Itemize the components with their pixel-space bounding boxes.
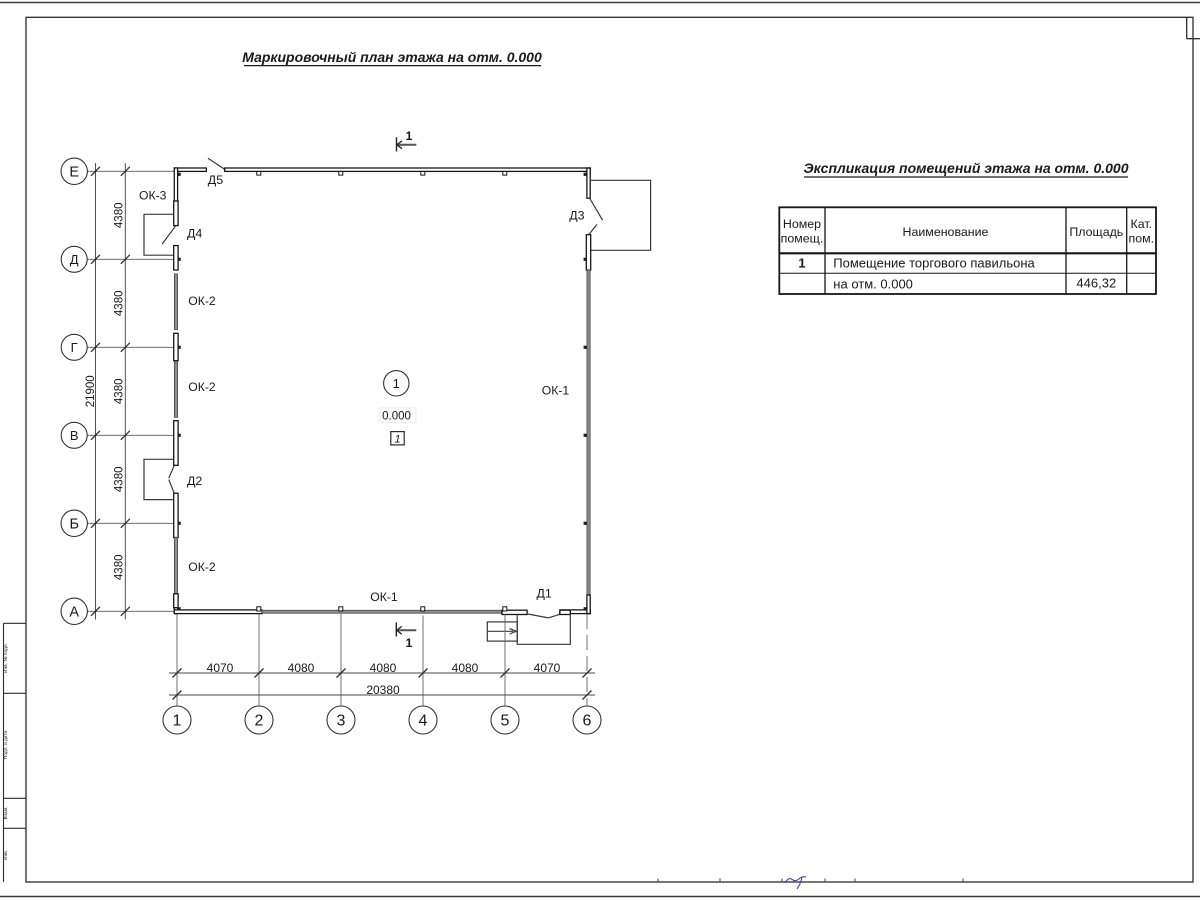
svg-text:Наименование: Наименование (903, 225, 989, 239)
svg-text:Кат.: Кат. (1131, 217, 1153, 231)
svg-text:ОК-1: ОК-1 (542, 383, 570, 397)
svg-text:4080: 4080 (370, 661, 397, 675)
svg-text:ОК-1: ОК-1 (370, 590, 398, 604)
svg-text:3: 3 (337, 713, 346, 730)
svg-text:4380: 4380 (114, 291, 126, 317)
svg-text:Инв.: Инв. (3, 850, 9, 860)
svg-text:Г: Г (71, 340, 78, 355)
svg-text:Площадь: Площадь (1069, 225, 1123, 239)
svg-text:Инв. № подл.: Инв. № подл. (3, 643, 9, 673)
svg-text:А: А (69, 605, 79, 621)
svg-text:446,32: 446,32 (1076, 276, 1116, 291)
svg-text:Д: Д (70, 252, 79, 267)
svg-text:Взам.: Взам. (3, 807, 9, 820)
svg-text:Д5: Д5 (208, 173, 223, 187)
svg-text:Б: Б (69, 517, 79, 533)
svg-text:Д2: Д2 (187, 474, 202, 488)
svg-text:21900: 21900 (85, 375, 97, 407)
svg-text:на отм. 0.000: на отм. 0.000 (833, 277, 913, 292)
svg-text:2: 2 (255, 713, 264, 730)
svg-text:4080: 4080 (288, 661, 315, 675)
svg-text:1: 1 (406, 129, 413, 143)
svg-text:4: 4 (419, 713, 428, 730)
svg-text:1: 1 (173, 713, 182, 730)
svg-text:Е: Е (69, 165, 79, 181)
svg-text:4070: 4070 (207, 661, 234, 675)
svg-text:ОК-3: ОК-3 (139, 189, 167, 203)
svg-text:помещ.: помещ. (781, 232, 824, 246)
svg-text:Номер: Номер (783, 217, 821, 231)
svg-text:В: В (70, 428, 79, 443)
svg-text:пом.: пом. (1129, 232, 1155, 246)
svg-text:Д1: Д1 (537, 587, 552, 601)
svg-text:4080: 4080 (452, 661, 479, 675)
svg-text:1: 1 (798, 256, 805, 271)
svg-text:ОК-2: ОК-2 (188, 560, 216, 574)
svg-text:5: 5 (501, 713, 510, 730)
svg-text:Маркировочный план этажа на от: Маркировочный план этажа на отм. 0.000 (242, 49, 542, 65)
svg-text:1: 1 (393, 376, 400, 391)
svg-text:4380: 4380 (114, 203, 126, 229)
svg-text:4380: 4380 (114, 379, 126, 405)
svg-text:Д3: Д3 (569, 209, 584, 223)
svg-text:Д4: Д4 (187, 226, 202, 240)
svg-text:1: 1 (406, 636, 413, 650)
svg-text:1: 1 (394, 433, 400, 445)
svg-text:Экспликация помещений этажа на: Экспликация помещений этажа на отм. 0.00… (804, 160, 1129, 176)
svg-text:4380: 4380 (114, 467, 126, 493)
svg-text:4070: 4070 (534, 661, 561, 675)
svg-text:0.000: 0.000 (382, 410, 411, 422)
svg-text:Подп. и дата: Подп. и дата (3, 731, 9, 760)
svg-text:Помещение торгового павильона: Помещение торгового павильона (833, 256, 1035, 271)
svg-text:20380: 20380 (366, 683, 400, 697)
svg-text:4380: 4380 (114, 555, 126, 581)
svg-text:6: 6 (583, 713, 592, 730)
svg-text:ОК-2: ОК-2 (188, 294, 216, 308)
svg-text:ОК-2: ОК-2 (188, 380, 216, 394)
